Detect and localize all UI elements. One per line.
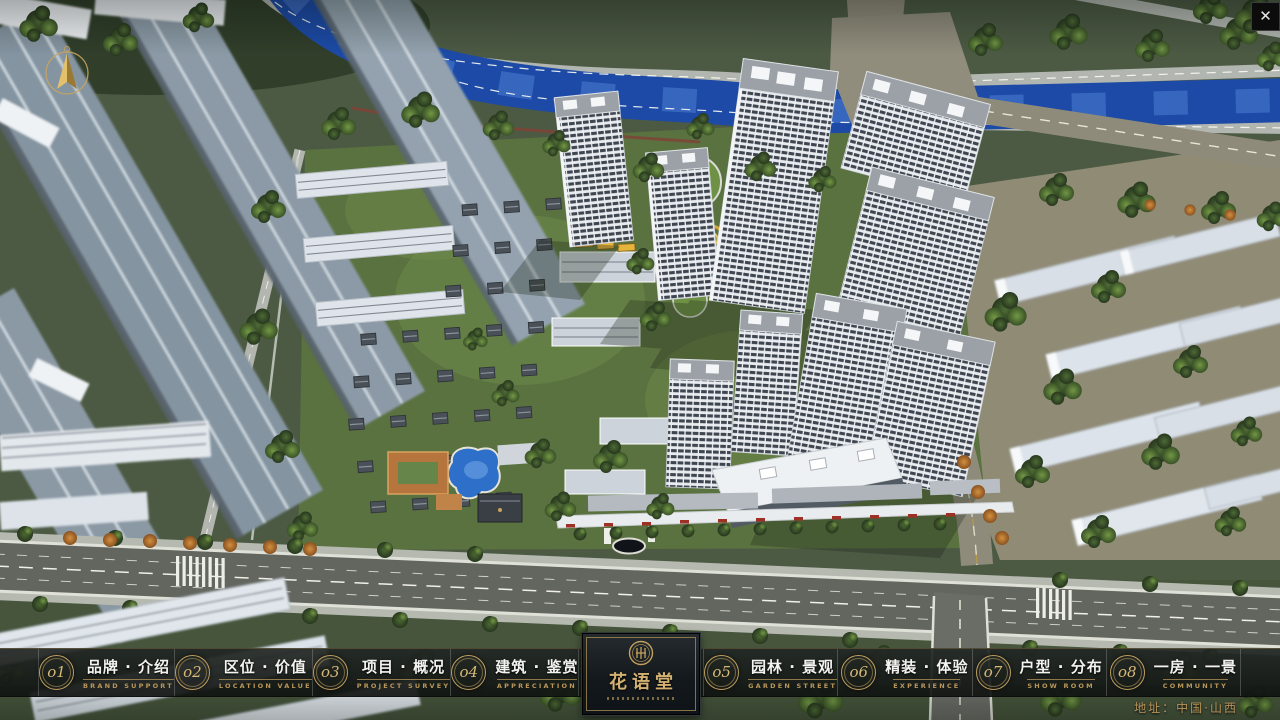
brand-title: 花语堂 [604, 668, 678, 694]
entrance-plaza [613, 539, 645, 554]
nav-label: 区位 · 价值 [224, 656, 307, 677]
number-badge: o3 [313, 655, 348, 690]
badge-number: o8 [1118, 663, 1137, 681]
nav-label: 户型 · 分布 [1020, 656, 1103, 677]
nav-sublabel: COMMUNITY [1163, 679, 1228, 690]
nav-label: 项目 · 概况 [362, 656, 445, 677]
nav-item-location-value[interactable]: o2 区位 · 价值 LOCATION VALUE [174, 649, 312, 696]
presentation-stage: ✕ o1 品牌 · 介绍 BRAND SUPPORT o2 区位 · 价值 LO… [0, 0, 1280, 720]
nav-item-unit-layout[interactable]: o7 户型 · 分布 SHOW ROOM [972, 649, 1106, 696]
number-badge: o1 [39, 655, 74, 690]
nav-group-right: o5 园林 · 景观 GARDEN STREET o6 精装 · 体验 EXPE… [703, 649, 1241, 696]
number-badge: o5 [704, 655, 739, 690]
nav-label: 园林 · 景观 [751, 656, 834, 677]
nav-item-garden-landscape[interactable]: o5 园林 · 景观 GARDEN STREET [703, 649, 837, 696]
nav-label: 精装 · 体验 [885, 656, 968, 677]
chinese-gatehouse [478, 494, 522, 522]
number-badge: o6 [841, 655, 876, 690]
nav-sublabel: GARDEN STREET [748, 679, 837, 690]
number-badge: o7 [976, 655, 1011, 690]
number-badge: o8 [1110, 655, 1145, 690]
badge-number: o4 [460, 663, 479, 681]
nav-item-interior-experience[interactable]: o6 精装 · 体验 EXPERIENCE [837, 649, 971, 696]
bottom-navbar: o1 品牌 · 介绍 BRAND SUPPORT o2 区位 · 价值 LOCA… [0, 648, 1280, 697]
nav-sublabel: EXPERIENCE [893, 679, 960, 690]
number-badge: o4 [451, 655, 486, 690]
nav-label: 一房 · 一景 [1154, 656, 1237, 677]
nav-item-brand-intro[interactable]: o1 品牌 · 介绍 BRAND SUPPORT [38, 649, 174, 696]
nav-label: 建筑 · 鉴赏 [495, 656, 578, 677]
nav-label: 品牌 · 介绍 [87, 656, 170, 677]
nav-item-project-survey[interactable]: o3 项目 · 概况 PROJECT SURVEY [312, 649, 451, 696]
nav-group-left: o1 品牌 · 介绍 BRAND SUPPORT o2 区位 · 价值 LOCA… [38, 649, 577, 696]
badge-number: o2 [183, 663, 202, 681]
seal-emblem-icon [628, 640, 654, 666]
masterplan-aerial-render [0, 0, 1280, 720]
nav-sublabel: BRAND SUPPORT [83, 679, 174, 690]
address-text: 地址：中国·山西 [1134, 699, 1238, 716]
nav-sublabel: SHOW ROOM [1027, 679, 1094, 690]
nav-sublabel: PROJECT SURVEY [357, 679, 451, 690]
badge-number: o5 [712, 663, 731, 681]
badge-number: o7 [984, 663, 1003, 681]
brand-logo-panel[interactable]: 花语堂 [582, 633, 700, 715]
close-button[interactable]: ✕ [1251, 2, 1280, 31]
badge-number: o6 [850, 663, 869, 681]
badge-number: o3 [321, 663, 340, 681]
nav-sublabel: APPRECIATION [497, 679, 577, 690]
nav-sublabel: LOCATION VALUE [219, 679, 312, 690]
nav-item-architecture[interactable]: o4 建筑 · 鉴赏 APPRECIATION [450, 649, 579, 696]
brand-tagline-decor [607, 697, 675, 700]
badge-number: o1 [47, 663, 66, 681]
number-badge: o2 [175, 655, 210, 690]
nav-item-room-view[interactable]: o8 一房 · 一景 COMMUNITY [1106, 649, 1241, 696]
